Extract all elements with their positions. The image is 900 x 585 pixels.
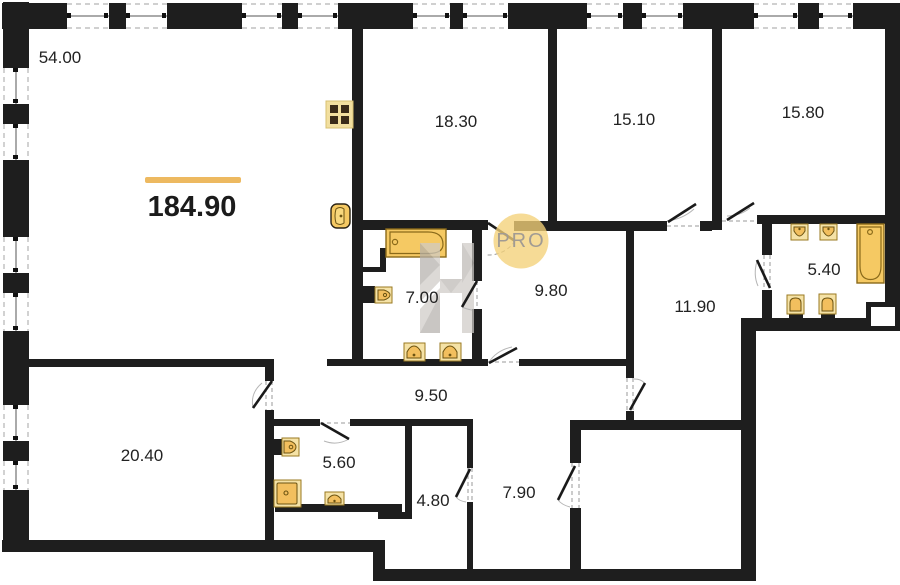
svg-text:5.60: 5.60 <box>322 453 355 472</box>
svg-text:54.00: 54.00 <box>39 48 82 67</box>
svg-text:15.10: 15.10 <box>613 110 656 129</box>
svg-text:4.80: 4.80 <box>416 491 449 510</box>
svg-text:11.90: 11.90 <box>674 297 715 316</box>
svg-text:20.40: 20.40 <box>121 446 164 465</box>
svg-text:18.30: 18.30 <box>435 112 478 131</box>
svg-text:5.40: 5.40 <box>807 260 840 279</box>
svg-text:PRO: PRO <box>496 230 545 252</box>
svg-text:9.50: 9.50 <box>414 386 447 405</box>
svg-text:15.80: 15.80 <box>782 103 825 122</box>
svg-text:7.00: 7.00 <box>405 288 438 307</box>
svg-text:9.80: 9.80 <box>534 281 567 300</box>
svg-text:7.90: 7.90 <box>502 483 535 502</box>
svg-text:184.90: 184.90 <box>148 191 237 223</box>
